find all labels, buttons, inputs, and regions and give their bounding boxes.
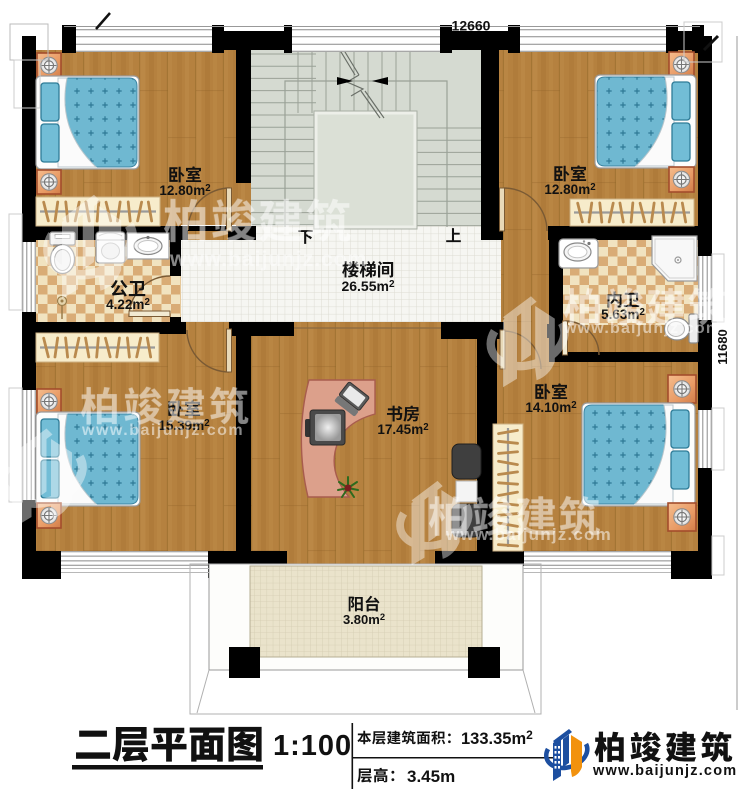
svg-text:3.45m: 3.45m [407,767,455,786]
svg-text:17.45m2: 17.45m2 [377,422,428,437]
svg-text:12.80m2: 12.80m2 [159,183,210,198]
svg-text:14.10m2: 14.10m2 [525,400,576,415]
svg-text:www.baijunjz.com: www.baijunjz.com [81,422,244,439]
svg-text:1:100: 1:100 [273,730,352,762]
svg-text:www.baijunjz.com: www.baijunjz.com [563,320,721,337]
svg-text:www.baijunjz.com: www.baijunjz.com [592,763,737,779]
svg-text:12660: 12660 [452,18,491,34]
svg-text:4.22m2: 4.22m2 [106,297,150,312]
svg-text:133.35m2: 133.35m2 [461,728,533,748]
svg-text:12.80m2: 12.80m2 [544,182,595,197]
svg-text:www.baijunjz.com: www.baijunjz.com [445,525,612,544]
svg-text:www.baijunjz.com: www.baijunjz.com [169,248,367,271]
svg-text:3.80m2: 3.80m2 [343,611,385,627]
svg-text:26.55m2: 26.55m2 [341,278,394,294]
